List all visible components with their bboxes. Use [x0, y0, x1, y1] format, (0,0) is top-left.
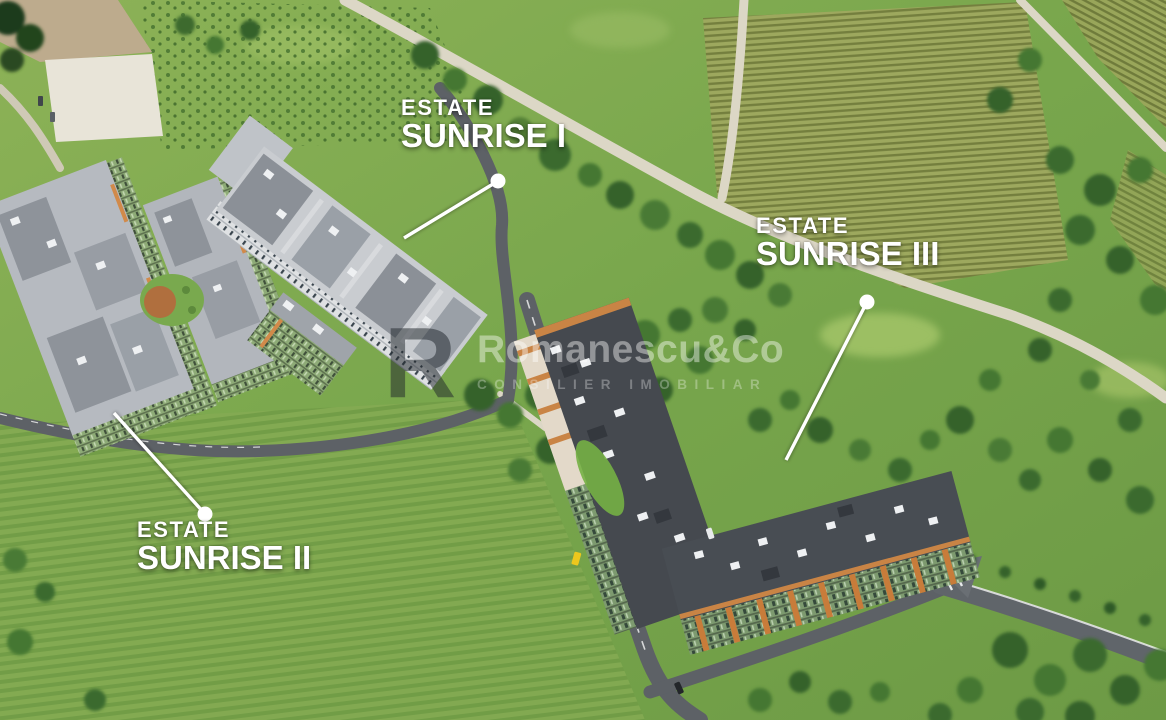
leader-dot-sunrise-3 [860, 295, 875, 310]
aerial-render: R Romanescu&Co CONSILIER IMOBILIAR ESTAT… [0, 0, 1166, 720]
sand-parking-lot [45, 54, 163, 142]
label-sunrise-3: ESTATE SUNRISE III [756, 214, 939, 272]
label-sunrise-1-title: SUNRISE I [401, 119, 566, 154]
label-sunrise-1: ESTATE SUNRISE I [401, 96, 566, 154]
courtyard [140, 274, 204, 326]
label-sunrise-2-title: SUNRISE II [137, 541, 311, 576]
label-sunrise-2: ESTATE SUNRISE II [137, 518, 311, 576]
label-sunrise-3-title: SUNRISE III [756, 237, 939, 272]
leader-dot-sunrise-1 [491, 174, 506, 189]
parked-car [38, 96, 43, 106]
label-sunrise-1-kicker: ESTATE [401, 96, 566, 119]
parked-car [50, 112, 55, 122]
label-sunrise-3-kicker: ESTATE [756, 214, 939, 237]
label-sunrise-2-kicker: ESTATE [137, 518, 311, 541]
scene-illustration [0, 0, 1166, 720]
